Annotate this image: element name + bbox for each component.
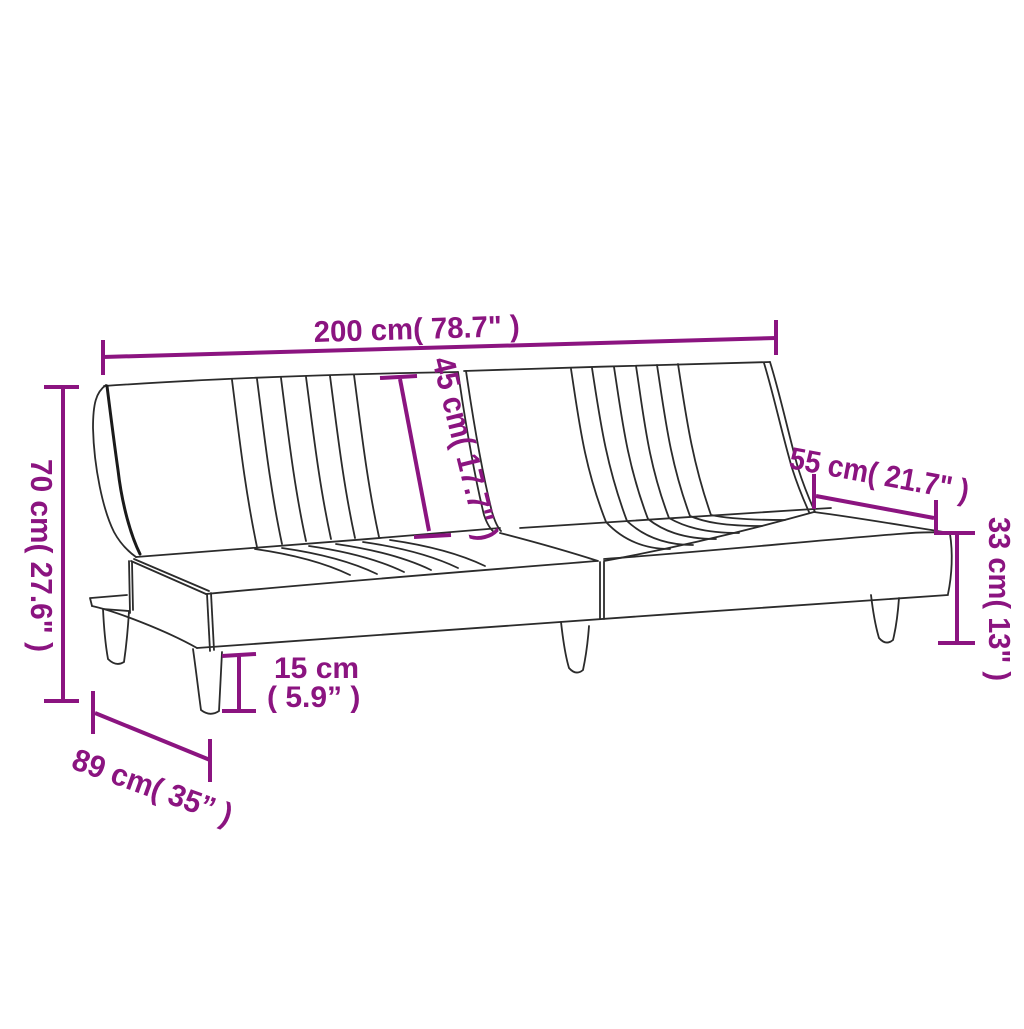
svg-text:( 5.9” ): ( 5.9” ) xyxy=(267,681,360,714)
svg-text:45 cm( 17.7" ): 45 cm( 17.7" ) xyxy=(425,353,505,544)
svg-text:70 cm( 27.6" ): 70 cm( 27.6" ) xyxy=(24,459,59,652)
svg-text:33 cm( 13" ): 33 cm( 13" ) xyxy=(982,517,1017,681)
svg-text:200 cm( 78.7" ): 200 cm( 78.7" ) xyxy=(313,310,520,349)
